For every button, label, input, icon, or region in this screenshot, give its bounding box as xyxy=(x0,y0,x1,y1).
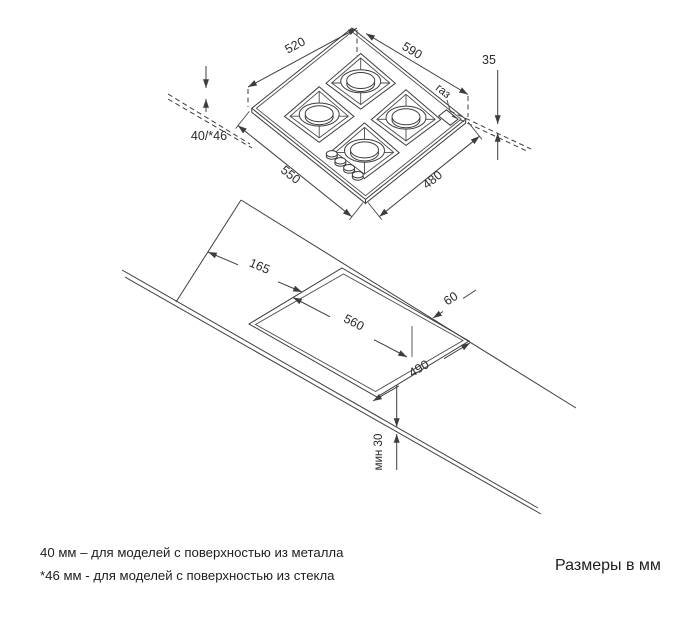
footnote-metal-surface: 40 мм – для моделей с поверхностью из ме… xyxy=(40,545,344,560)
units-note: Размеры в мм xyxy=(555,557,661,574)
burner-front xyxy=(330,123,399,179)
installation-diagram-page: 520 590 550 480 35 40/*46 газ xyxy=(0,0,697,619)
dimension-label-550: 550 xyxy=(278,163,303,187)
dimensions-diagram: 520 590 550 480 35 40/*46 газ xyxy=(0,0,697,619)
countertop-left-cut-edge xyxy=(176,200,241,302)
gas-label: газ xyxy=(433,82,453,101)
dimension-label-min-30: мин 30 xyxy=(373,434,385,471)
countertop-front-bottom-edge xyxy=(125,277,541,514)
dimension-label-40-46: 40/*46 xyxy=(191,129,227,143)
dimension-label-60: 60 xyxy=(441,289,460,308)
countertop-cutout-view: 165 560 490 60 мин 30 xyxy=(122,200,576,514)
burner-left xyxy=(285,87,354,143)
dimension-480 xyxy=(368,122,482,220)
burner-back xyxy=(326,54,395,110)
dimension-label-560: 560 xyxy=(341,311,366,333)
dimension-label-590: 590 xyxy=(400,39,425,62)
dimension-label-165: 165 xyxy=(247,256,272,277)
dimension-label-35: 35 xyxy=(482,53,496,67)
dimension-label-520: 520 xyxy=(283,34,308,56)
hob-isometric-view: 520 590 550 480 35 40/*46 газ xyxy=(168,28,531,220)
dimension-label-480: 480 xyxy=(420,168,445,192)
footnote-glass-surface: *46 мм - для моделей с поверхностью из с… xyxy=(40,568,335,583)
countertop-front-edge xyxy=(122,270,538,508)
counter-level-dashed-right xyxy=(450,111,531,152)
